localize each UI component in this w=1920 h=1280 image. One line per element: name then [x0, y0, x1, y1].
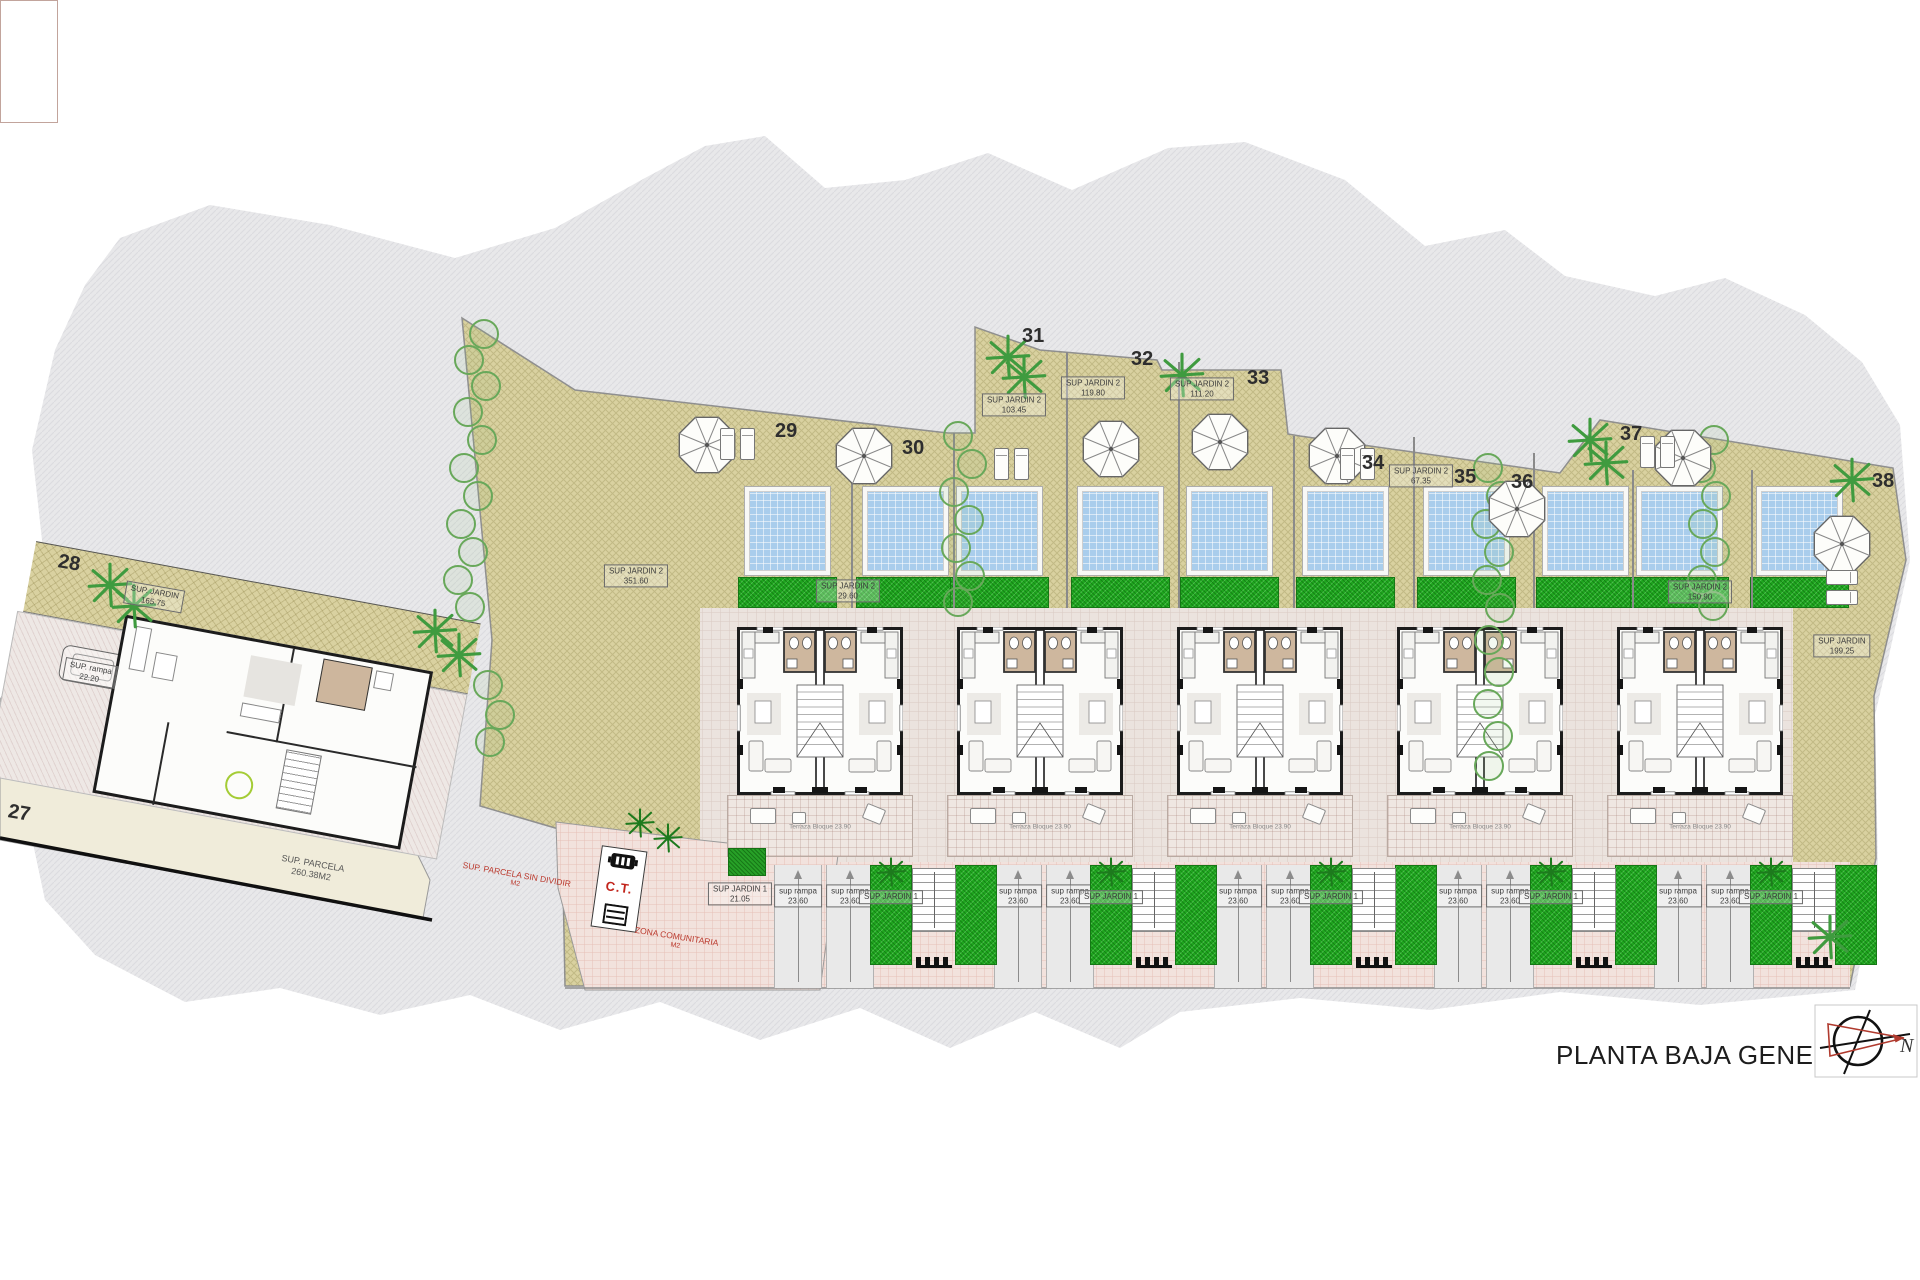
area-label: SUP JARDIN 267.35 [1389, 464, 1453, 487]
north-compass: N [1814, 1004, 1918, 1078]
site-plan: C.T. PLANTA BAJA GENERAL N Terraza Bloqu… [0, 0, 1920, 1280]
planter [728, 848, 766, 876]
hedge-strip [1175, 865, 1217, 965]
ramp-label: sup rampa23.60 [1434, 884, 1482, 907]
plot-number: 27 [6, 800, 32, 827]
sun-loungers [1640, 436, 1678, 470]
parasol-icon [1079, 417, 1143, 486]
round-tree-icon [1688, 509, 1718, 539]
plot-number: 35 [1454, 466, 1476, 489]
plot-fence [1751, 470, 1753, 608]
round-tree-icon [1483, 721, 1513, 751]
parasol-icon [832, 424, 896, 493]
entrance-gate [1136, 957, 1172, 968]
plot-number: 38 [1872, 470, 1894, 493]
round-tree-icon [943, 421, 973, 451]
area-label: SUP JARDIN 2150.90 [1668, 580, 1732, 603]
north-label: N [1899, 1035, 1915, 1057]
sun-loungers [994, 448, 1032, 482]
round-tree-icon [471, 371, 501, 401]
palm-tree-icon [433, 629, 485, 686]
plot-number: 33 [1247, 367, 1269, 390]
round-tree-icon [458, 537, 488, 567]
plot-fence [1632, 470, 1634, 608]
plot-number: 31 [1022, 325, 1044, 348]
round-tree-icon [469, 319, 499, 349]
palm-tree-icon [1804, 911, 1856, 968]
bush-icon [1754, 855, 1788, 894]
round-tree-icon [939, 477, 969, 507]
grille-icon [602, 903, 629, 926]
ramp-label: sup rampa23.60 [1214, 884, 1262, 907]
hedge-strip [955, 865, 997, 965]
area-label: SUP JARDIN 2351.60 [604, 564, 668, 587]
bush-icon [1094, 855, 1128, 894]
round-tree-icon [1485, 593, 1515, 623]
round-tree-icon [475, 727, 505, 757]
area-label: SUP JARDIN 2103.45 [982, 393, 1046, 416]
terrace-dimension: Terraza Bloque 23.90 [1669, 824, 1731, 831]
round-tree-icon [954, 505, 984, 535]
swimming-pool [1303, 487, 1388, 575]
palm-tree-icon [1826, 454, 1878, 511]
duplex-building [1617, 627, 1783, 795]
area-label: SUP JARDIN199.25 [1813, 634, 1870, 657]
sun-loungers [1824, 570, 1858, 608]
ramp-label: sup rampa23.60 [774, 884, 822, 907]
bush-icon [1314, 855, 1348, 894]
swimming-pool [863, 487, 948, 575]
ramp-label: sup rampa23.60 [994, 884, 1042, 907]
plot-fence [1413, 437, 1415, 608]
swimming-pool [1187, 487, 1272, 575]
plot-number: 30 [902, 437, 924, 460]
grass-strip [1180, 577, 1279, 608]
round-tree-icon [1472, 565, 1502, 595]
plot-number: 36 [1511, 471, 1533, 494]
hedge-label: SUP JARDIN 1 [1079, 890, 1143, 904]
hedge-label: SUP JARDIN 1 [1519, 890, 1583, 904]
round-tree-icon [943, 587, 973, 617]
hedge-label: SUP JARDIN 1 [1299, 890, 1363, 904]
hedge-strip [1615, 865, 1657, 965]
terrace-dimension: Terraza Bloque 23.90 [789, 824, 851, 831]
terrace-dimension: Terraza Bloque 23.90 [1449, 824, 1511, 831]
swimming-pool [1543, 487, 1628, 575]
duplex-building [957, 627, 1123, 795]
round-tree-icon [957, 449, 987, 479]
round-tree-icon [1700, 537, 1730, 567]
grass-strip [1071, 577, 1170, 608]
round-tree-icon [453, 397, 483, 427]
bush-icon [651, 821, 685, 860]
swimming-pool [1078, 487, 1163, 575]
terrace-dimension: Terraza Bloque 23.90 [1229, 824, 1291, 831]
area-label: SUP JARDIN 2119.80 [1061, 376, 1125, 399]
round-tree-icon [443, 565, 473, 595]
grass-strip [1296, 577, 1395, 608]
round-tree-icon [1473, 689, 1503, 719]
hedge-label: SUP JARDIN 1 [1739, 890, 1803, 904]
round-tree-icon [463, 481, 493, 511]
round-tree-icon [446, 509, 476, 539]
plot-number: 34 [1362, 452, 1384, 475]
round-tree-icon [1474, 625, 1504, 655]
ramp-label: sup rampa23.60 [1654, 884, 1702, 907]
entrance-gate [1356, 957, 1392, 968]
hedge-label: SUP JARDIN 1 [859, 890, 923, 904]
transformer-icon [607, 851, 639, 871]
duplex-building [1177, 627, 1343, 795]
area-label: SUP JARDIN 2111.20 [1170, 377, 1234, 400]
hedge-strip [1395, 865, 1437, 965]
round-tree-icon [454, 345, 484, 375]
parasol-icon [1188, 410, 1252, 479]
round-tree-icon [467, 425, 497, 455]
plot-number: 37 [1620, 423, 1642, 446]
round-tree-icon [485, 700, 515, 730]
tree-ring-icon [223, 769, 256, 802]
plot-number: 29 [775, 420, 797, 443]
round-tree-icon [1474, 751, 1504, 781]
round-tree-icon [449, 453, 479, 483]
entrance-gate [1576, 957, 1612, 968]
sun-loungers [720, 428, 758, 462]
area-label: SUP JARDIN 121.05 [708, 882, 772, 905]
plot-number: 28 [56, 550, 82, 577]
plot-fence [1293, 436, 1295, 608]
terrace-dimension: Terraza Bloque 23.90 [1009, 824, 1071, 831]
bush-icon [874, 855, 908, 894]
area-label: SUP JARDIN 229.60 [816, 579, 880, 602]
ct-label: C.T. [605, 878, 634, 897]
round-tree-icon [1484, 657, 1514, 687]
entrance-gate [916, 957, 952, 968]
duplex-building [737, 627, 903, 795]
round-tree-icon [941, 533, 971, 563]
bush-icon [1534, 855, 1568, 894]
grass-strip [1536, 577, 1635, 608]
plot-number: 32 [1131, 348, 1153, 371]
swimming-pool [745, 487, 830, 575]
